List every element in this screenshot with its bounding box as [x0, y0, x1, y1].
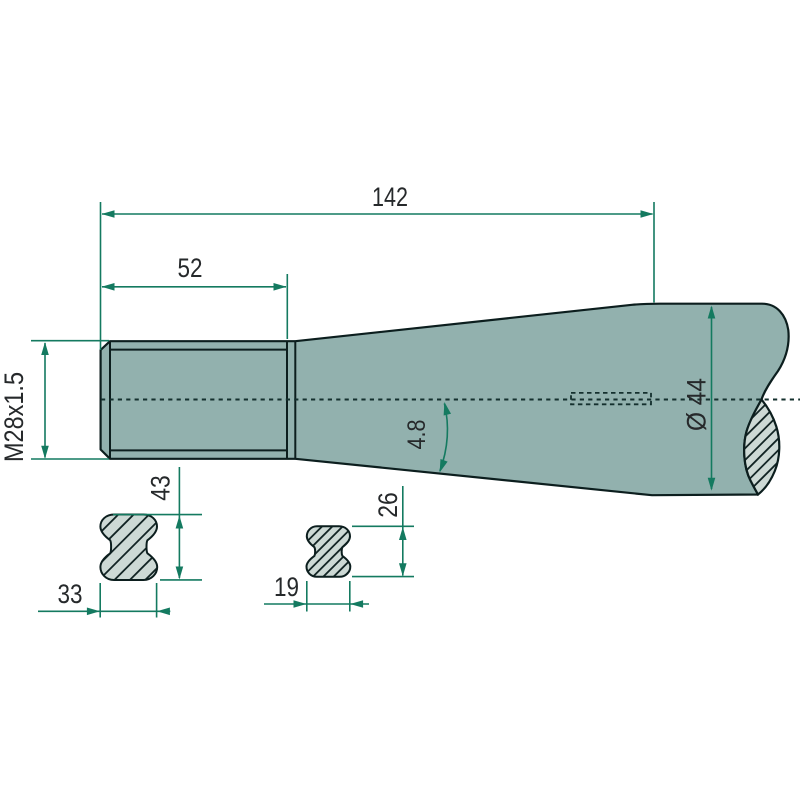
svg-text:52: 52 [178, 253, 203, 283]
svg-text:Ø 44: Ø 44 [682, 378, 712, 431]
svg-text:4.8: 4.8 [403, 420, 431, 450]
svg-text:M28x1.5: M28x1.5 [0, 372, 29, 462]
svg-text:33: 33 [58, 579, 83, 609]
svg-text:43: 43 [145, 475, 175, 501]
svg-text:142: 142 [372, 182, 408, 212]
svg-text:26: 26 [373, 492, 403, 518]
svg-text:19: 19 [274, 572, 299, 602]
